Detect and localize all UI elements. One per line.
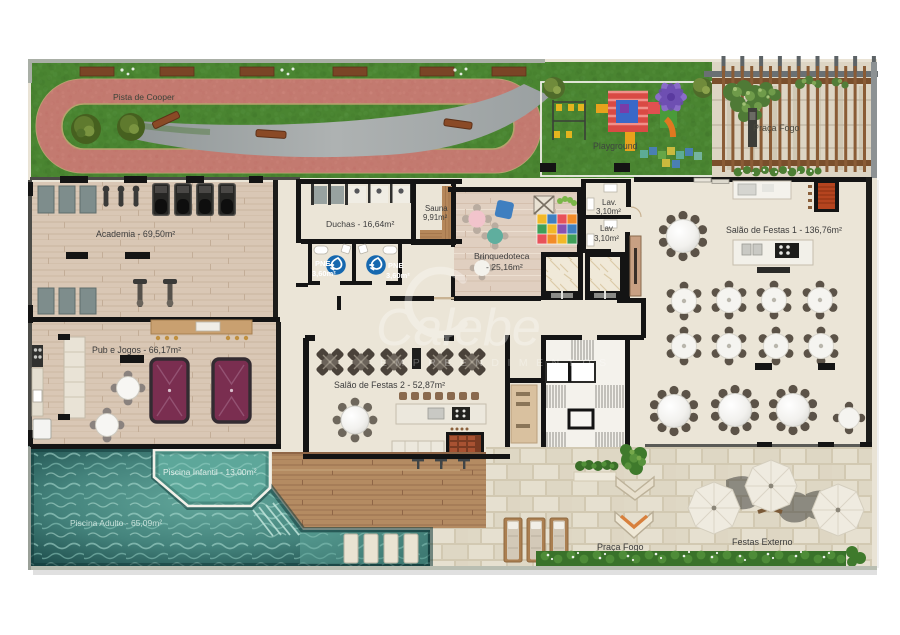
svg-text:Lav.: Lav. bbox=[602, 198, 617, 207]
svg-text:EMPREENDIMENTOS: EMPREENDIMENTOS bbox=[380, 357, 615, 369]
svg-text:3,60m²: 3,60m² bbox=[312, 269, 336, 278]
svg-text:Piscina Adulto - 65,09m²: Piscina Adulto - 65,09m² bbox=[70, 518, 162, 528]
svg-text:Lav.: Lav. bbox=[600, 224, 615, 233]
svg-text:3,10m²: 3,10m² bbox=[596, 207, 621, 216]
svg-text:Salão de Festas 2 - 52,87m²: Salão de Festas 2 - 52,87m² bbox=[334, 380, 445, 390]
svg-text:Piscina Infantil - 13,00m²: Piscina Infantil - 13,00m² bbox=[163, 467, 257, 477]
svg-text:Sauna: Sauna bbox=[425, 204, 448, 213]
svg-text:Festas Externo: Festas Externo bbox=[732, 537, 793, 547]
svg-text:Calebe: Calebe bbox=[376, 299, 541, 357]
svg-text:Pub e Jogos - 66,17m²: Pub e Jogos - 66,17m² bbox=[92, 345, 181, 355]
svg-text:Praça Fogo: Praça Fogo bbox=[753, 123, 800, 133]
svg-text:9,91m²: 9,91m² bbox=[423, 213, 448, 222]
svg-text:3,60m²: 3,60m² bbox=[386, 271, 410, 280]
svg-text:Duchas - 16,64m²: Duchas - 16,64m² bbox=[326, 219, 394, 229]
svg-text:Salão de Festas 1 - 136,76m²: Salão de Festas 1 - 136,76m² bbox=[726, 225, 842, 235]
svg-text:Playground: Playground bbox=[593, 141, 638, 151]
svg-text:Praça Fogo: Praça Fogo bbox=[597, 542, 644, 552]
svg-text:PNE: PNE bbox=[315, 259, 330, 268]
svg-text:3,10m²: 3,10m² bbox=[594, 234, 619, 243]
svg-text:Academia - 69,50m²: Academia - 69,50m² bbox=[96, 229, 175, 239]
svg-text:Brinquedoteca: Brinquedoteca bbox=[474, 251, 530, 261]
svg-text:- 25,16m²: - 25,16m² bbox=[486, 262, 523, 272]
svg-text:PNE: PNE bbox=[388, 261, 403, 270]
svg-text:Pista de Cooper: Pista de Cooper bbox=[113, 92, 175, 102]
